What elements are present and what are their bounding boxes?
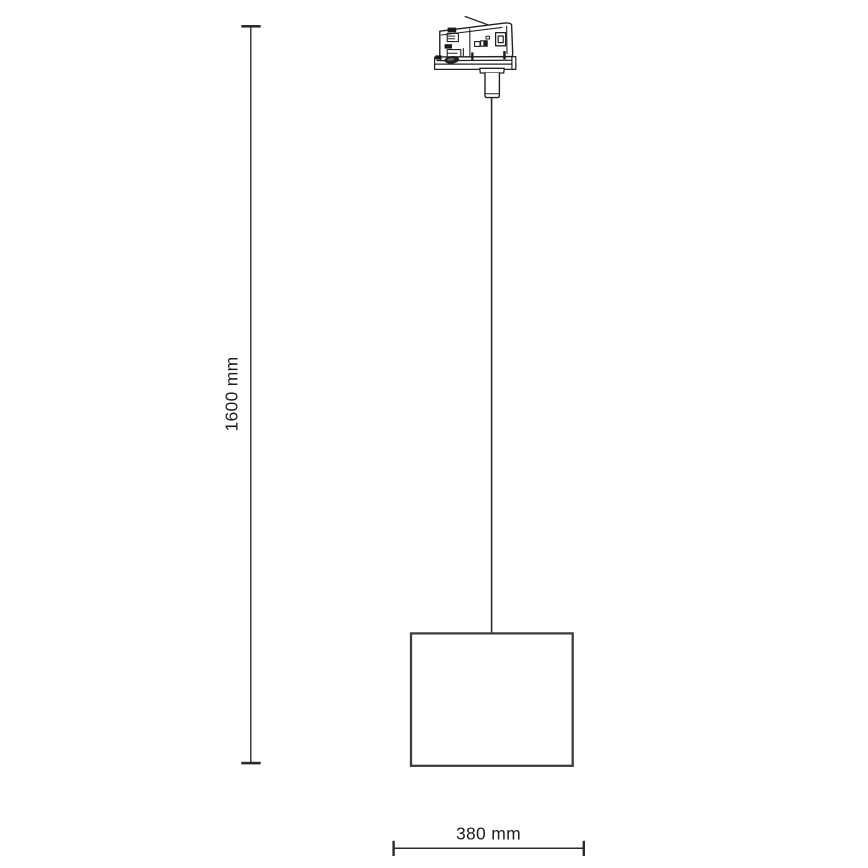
adapter-plate-tick-right [503,51,506,59]
product-dimension-diagram: 1600 mm 380 mm [0,0,868,868]
adapter-flange [480,68,505,73]
adapter-plate-right-tab [512,57,516,70]
track-adapter-drawing [435,17,516,98]
adapter-plate-tick-left [471,52,473,60]
adapter-plate-left-block [435,55,441,59]
height-dimension-bottom-cap [241,762,260,765]
width-dimension: 380 mm [392,824,585,857]
adapter-contact-block-mid [445,44,452,48]
dimension-drawing-svg: 1600 mm 380 mm [0,0,868,868]
height-dimension-label: 1600 mm [222,356,242,431]
width-dimension-label: 380 mm [456,824,521,844]
adapter-contact-block-top [448,28,457,33]
width-dimension-right-cap [583,841,585,856]
lampshade-outline [411,633,573,765]
adapter-terminal-large-fill [483,41,487,46]
height-dimension: 1600 mm [222,25,261,764]
